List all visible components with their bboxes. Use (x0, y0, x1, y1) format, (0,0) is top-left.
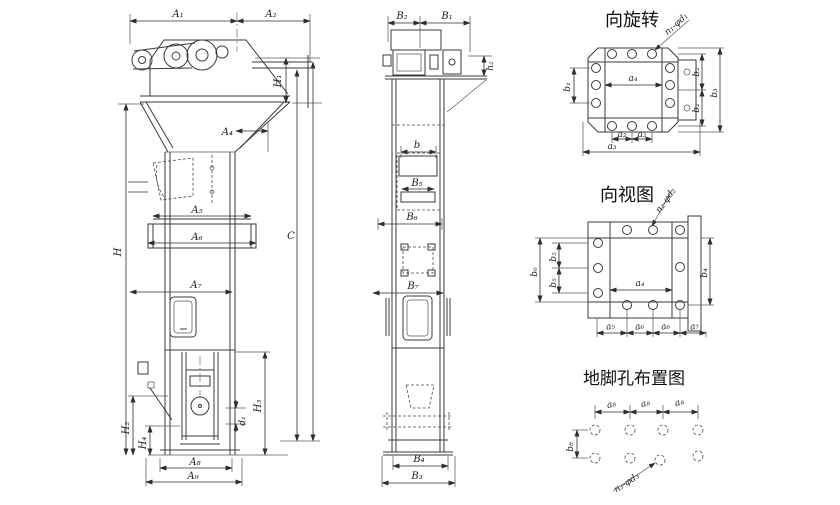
leader-label-n3: n₃-φd₃ (612, 471, 641, 495)
dim-label-a5: a₅ (605, 321, 616, 333)
dim-label-b1-rot: b₁ (563, 82, 573, 91)
dim-label-a8a: a₈ (606, 399, 618, 411)
bucket-elevator-drawing: A₁ A₂ H₁ (0, 0, 840, 505)
dim-label-a6a: a₆ (634, 321, 645, 333)
dim-label-A7: A₇ (189, 280, 201, 291)
dim-label-a8c: a₈ (674, 397, 686, 409)
inspection-door-front (170, 297, 196, 337)
dim-label-a4-rot: a₄ (629, 74, 638, 84)
dim-label-b5a: b₅ (549, 252, 559, 262)
dim-label-H3: H₃ (253, 400, 264, 414)
dim-label-a7: a₇ (689, 321, 700, 333)
dim-label-a4-dir: a₄ (636, 279, 645, 289)
head-drive-assembly (132, 40, 312, 108)
dim-label-B6: B₆ (405, 212, 417, 223)
dim-label-b2a: b₂ (692, 67, 702, 77)
head-side-assembly (383, 30, 487, 112)
head-transition (140, 102, 290, 152)
dim-label-H2: H₂ (121, 422, 132, 436)
leader-label-n1: n₁-φd₁ (663, 11, 691, 37)
bolt-pattern-detail (401, 244, 435, 276)
dim-label-A6: A₆ (190, 232, 202, 243)
direction-view-title: 向视图 (600, 185, 654, 206)
front-view: A₁ A₂ H₁ (113, 9, 322, 486)
dim-label-d1: d₁ (238, 416, 248, 425)
direction-view: 向视图 n₂-φd₂ a₄ b₄ b₅ b (530, 185, 714, 337)
boot-pulley (191, 397, 209, 415)
dim-label-C: C (287, 231, 295, 242)
side-view: B₂ B₁ h₂ b (373, 11, 496, 487)
elevator-trunk-side (392, 79, 444, 452)
technical-drawing-canvas: A₁ A₂ H₁ (0, 0, 840, 505)
boot-side (383, 348, 453, 455)
dim-label-B2: B₂ (395, 11, 407, 22)
dim-label-b5b: b₅ (549, 278, 559, 288)
dim-label-B1: B₁ (440, 11, 452, 22)
dim-label-b2b: b₂ (692, 103, 702, 113)
dim-label-A2: A₂ (264, 9, 276, 20)
leader-label-n2: n₂-φd₂ (654, 186, 679, 215)
anchor-hole-layout: 地脚孔布置图 a₈ a₈ a₈ b₈ n₃-φd₃ (566, 369, 703, 495)
elevator-trunk-front (165, 152, 235, 455)
dim-label-A1: A₁ (171, 9, 183, 20)
dim-label-b4: b₄ (700, 268, 710, 278)
anchor-layout-title: 地脚孔布置图 (583, 369, 685, 389)
dim-label-B4: B₄ (412, 454, 424, 465)
rotation-view: 向旋转 n₁-φd₁ a₄ b₁ (563, 10, 724, 156)
dim-label-b3-rot: b₃ (710, 88, 720, 98)
dim-label-A9: A₉ (186, 471, 198, 482)
bucket-detail-dashed (128, 155, 214, 205)
dim-label-H: H (113, 247, 124, 257)
dim-label-A8: A₈ (188, 457, 200, 468)
dim-label-A4: A₄ (221, 127, 233, 138)
dim-label-B5: B₅ (410, 178, 422, 189)
dim-label-a6b: a₆ (660, 321, 671, 333)
boot-flange-outline (588, 216, 701, 331)
dim-label-A5: A₅ (190, 205, 202, 216)
dim-label-a2b: a₂ (638, 130, 647, 140)
dim-label-B3: B₃ (410, 471, 422, 482)
dim-label-b: b (414, 140, 420, 151)
dim-label-H4: H₄ (138, 437, 149, 451)
dim-label-a8b: a₈ (640, 398, 652, 410)
dim-label-a3: a₃ (608, 142, 617, 152)
dim-label-H1: H₁ (273, 75, 284, 89)
dim-label-a2a: a₂ (618, 130, 627, 140)
rotation-view-title: 向旋转 (605, 10, 659, 31)
boot-front (138, 350, 288, 455)
dim-label-B7: B₇ (406, 281, 418, 292)
dim-label-h2-side: h₂ (486, 61, 496, 71)
dim-label-b6: b₆ (530, 267, 540, 277)
anchor-holes (590, 425, 703, 465)
dim-label-b8: b₈ (566, 442, 576, 452)
